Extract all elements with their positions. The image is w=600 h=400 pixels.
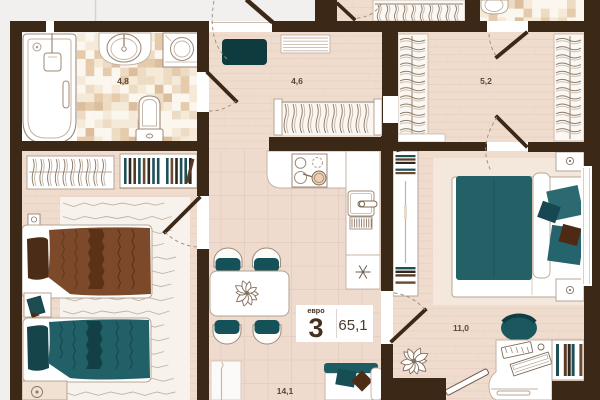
svg-text:65,1: 65,1 [338, 317, 367, 334]
svg-text:4,6: 4,6 [291, 76, 303, 86]
svg-text:11,0: 11,0 [453, 323, 469, 333]
svg-text:5,2: 5,2 [480, 76, 492, 86]
svg-text:3: 3 [308, 313, 323, 343]
svg-text:4,8: 4,8 [117, 76, 129, 86]
svg-text:14,1: 14,1 [277, 386, 294, 396]
